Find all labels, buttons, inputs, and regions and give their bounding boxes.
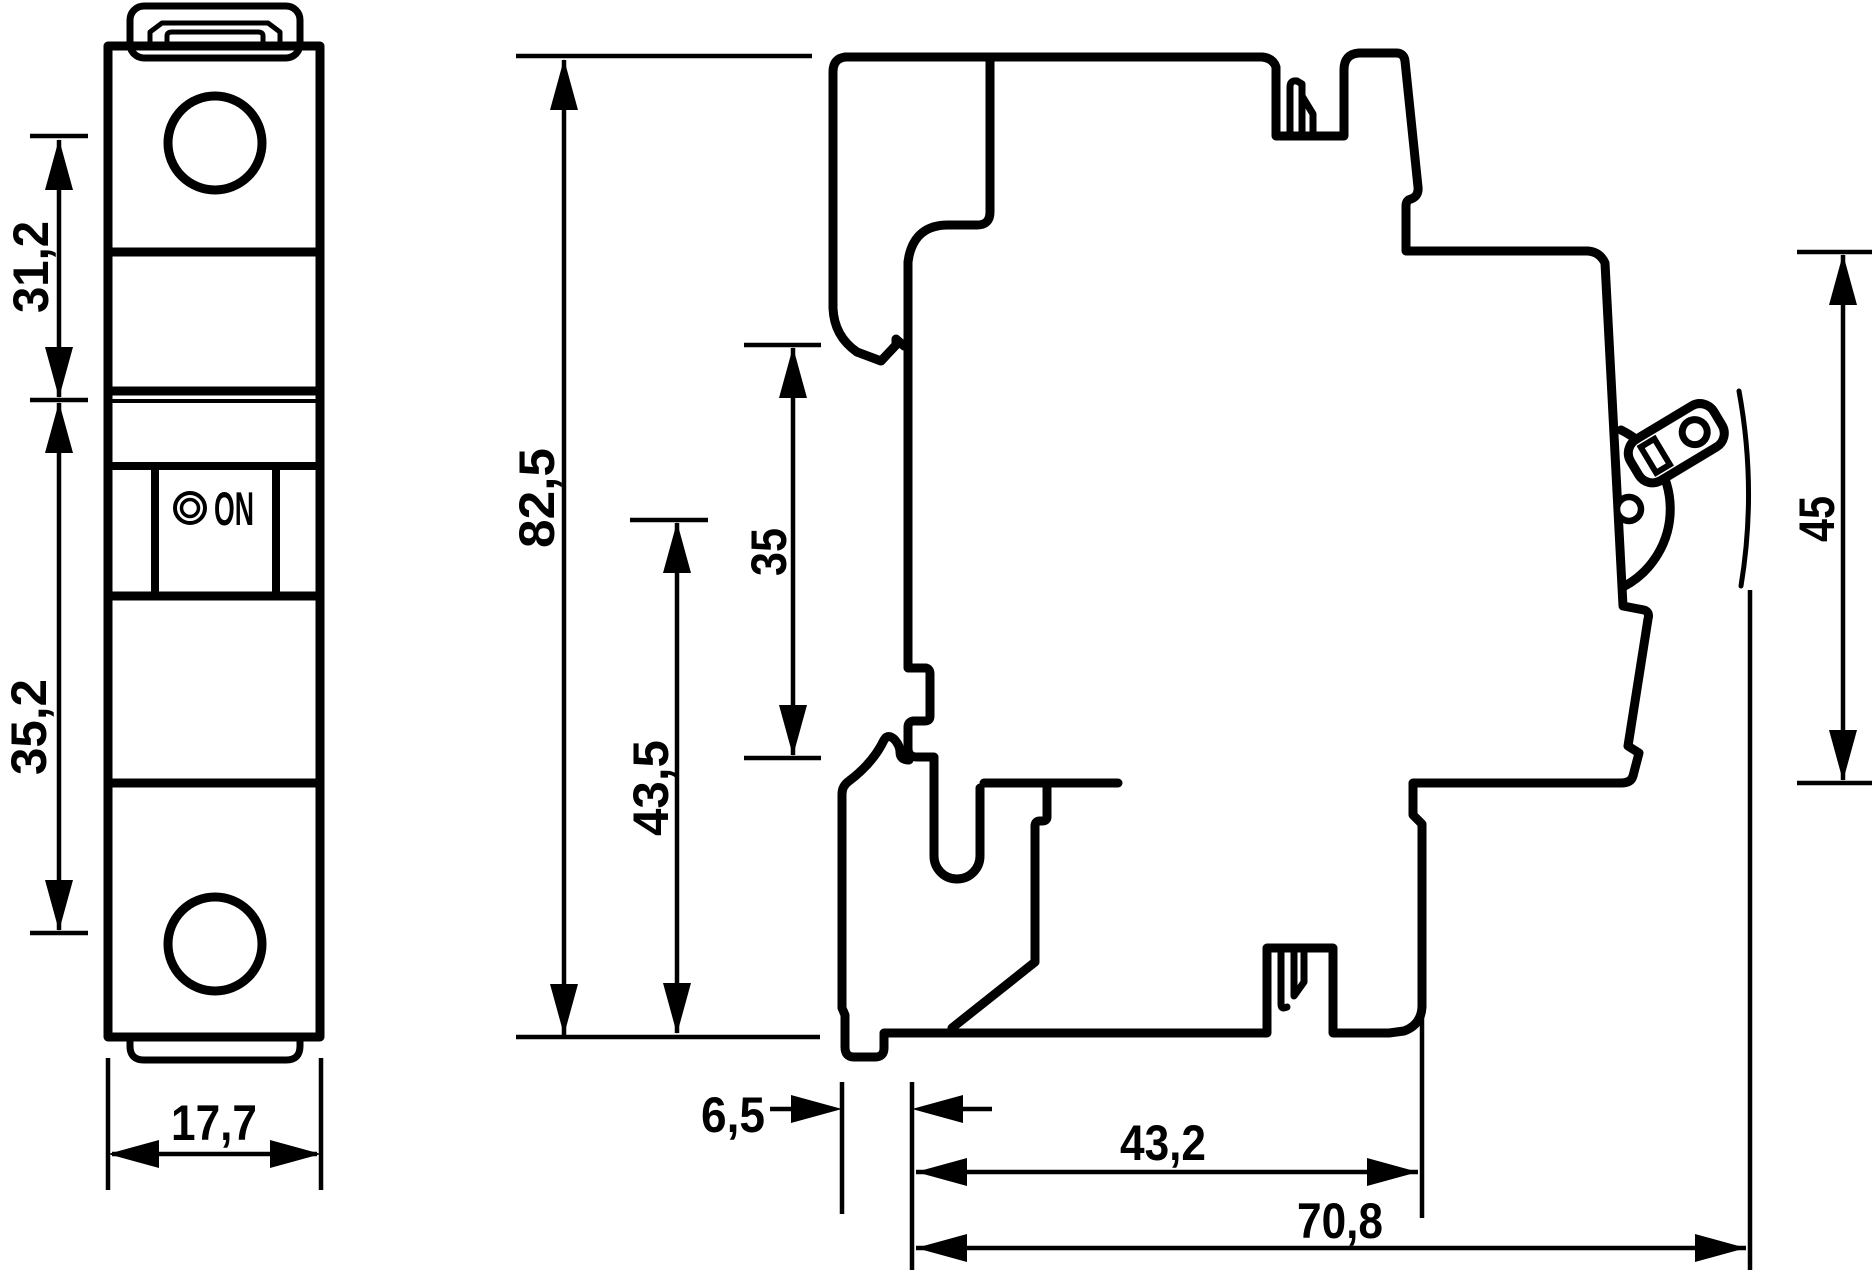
dim-label-17-7: 17,7 — [171, 1095, 257, 1151]
dim-label-35: 35 — [741, 528, 797, 576]
side-body-outline — [842, 53, 1649, 1057]
terminal-hole-top — [168, 96, 262, 190]
toggle-lever — [1622, 398, 1730, 489]
dim-front-upper: 31,2 — [3, 136, 88, 400]
front-view: ON — [108, 6, 320, 1060]
dim-label-31-2: 31,2 — [3, 221, 59, 313]
terminal-hole-bottom — [168, 897, 262, 991]
lever-pivot-dot — [1617, 497, 1641, 521]
dim-side-43-5: 43,5 — [623, 520, 708, 1034]
on-label: ON — [214, 482, 254, 535]
drawing-page: ON 31,2 — [0, 0, 1873, 1277]
side-screw-post-top — [1290, 81, 1313, 136]
technical-drawing-canvas: ON 31,2 — [0, 0, 1873, 1277]
dim-label-70-8: 70,8 — [1297, 1193, 1383, 1249]
on-indicator-icon — [175, 493, 205, 523]
dim-front-face-height: 45 — [1789, 252, 1872, 783]
side-view — [833, 53, 1749, 1057]
dim-label-45: 45 — [1789, 496, 1845, 542]
side-screw-post-bottom — [1281, 948, 1304, 1008]
dim-label-43-5: 43,5 — [623, 740, 679, 836]
dim-front-lower: 35,2 — [1, 402, 88, 933]
dim-din-rail: 35 — [741, 345, 821, 758]
dimension-annotations: 31,2 35,2 17,7 82,5 43,5 — [1, 56, 1872, 1270]
dim-label-6-5: 6,5 — [701, 1087, 765, 1143]
side-rear-beak — [833, 57, 904, 361]
dim-front-width: 17,7 — [108, 1058, 321, 1190]
lever-swing-arc — [1739, 391, 1749, 586]
toggle-lever-body — [1622, 398, 1730, 489]
dim-label-43-2: 43,2 — [1120, 1115, 1206, 1171]
front-body-outline — [108, 46, 320, 1037]
side-din-channel — [908, 58, 990, 879]
dim-label-82-5: 82,5 — [509, 448, 565, 548]
dim-depth-overall: 70,8 — [916, 590, 1750, 1270]
side-din-clip-step — [952, 786, 1047, 1028]
dim-label-35-2: 35,2 — [1, 679, 57, 775]
